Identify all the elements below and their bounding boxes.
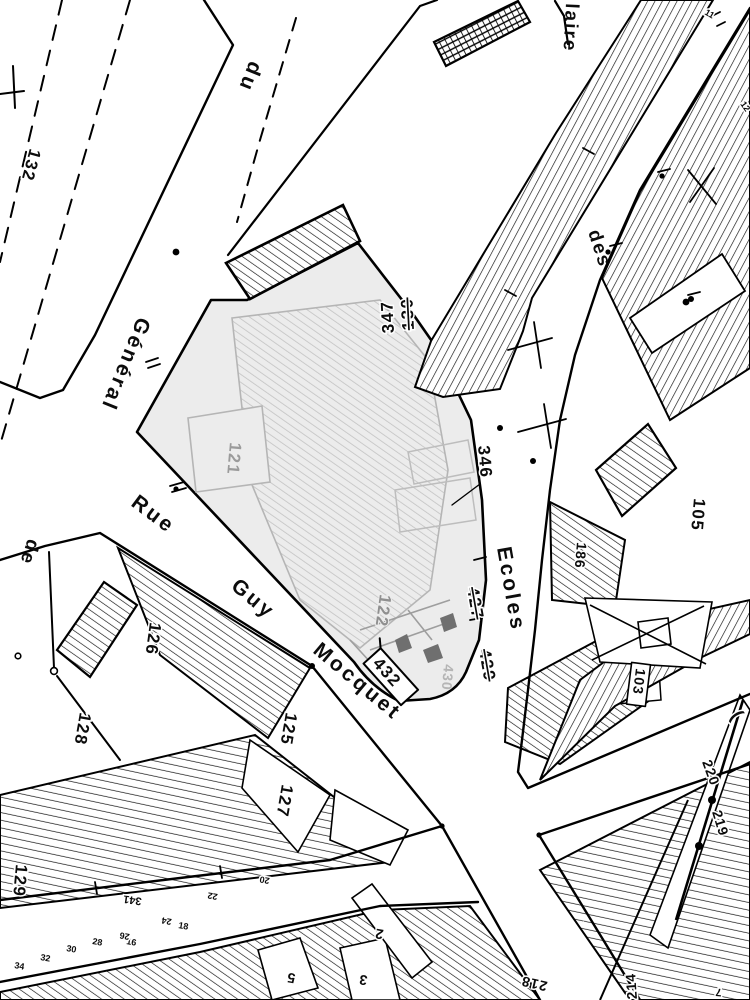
house-number-18: 18 <box>178 920 190 932</box>
parcel-label-347: 347 <box>377 300 398 334</box>
street-label-rue: Rue <box>127 491 180 539</box>
parcel-label-429: 429 <box>475 647 499 683</box>
parcel-label-430: 430 <box>439 664 457 692</box>
house-number-34: 34 <box>14 960 26 972</box>
dashed-median-du <box>237 18 296 222</box>
house-number-26: 26 <box>119 930 131 942</box>
street-label-des: des <box>583 227 615 270</box>
parcel-label-186: 186 <box>572 542 590 570</box>
parcel-label-121: 121 <box>223 442 245 476</box>
corner-mark-a <box>13 66 15 108</box>
house-number-28: 28 <box>92 936 104 948</box>
street-label-de: de <box>15 536 43 567</box>
cadastral-map-page: du Général de Rue Guy Mocquet des Ecoles… <box>0 0 750 1000</box>
dashed-boundary-1 <box>0 0 62 262</box>
street-label-laire: laire <box>558 3 582 53</box>
survey-cross-1b <box>534 322 541 368</box>
street-label-ecoles: Ecoles <box>492 545 530 633</box>
parcel-label-128: 128 <box>70 711 94 747</box>
parcel-label-129: 129 <box>9 864 31 898</box>
parcel-label-346: 346 <box>474 445 496 479</box>
parcel-label-214: 214 <box>622 972 640 999</box>
parcel-label-103: 103 <box>630 668 649 696</box>
cadastral-map: du Général de Rue Guy Mocquet des Ecoles… <box>0 0 750 1000</box>
house-number-30: 30 <box>66 943 78 955</box>
survey-cross-2b <box>544 404 551 448</box>
house-number-341: 341 <box>123 892 143 906</box>
parcel-diamond <box>596 424 676 516</box>
boundary-dot-2 <box>695 842 703 850</box>
corner-circle-2 <box>51 668 58 675</box>
house-number-32: 32 <box>40 952 52 964</box>
boundary-dot-1 <box>708 796 716 804</box>
parcel-label-126: 126 <box>141 621 164 656</box>
edge-126-west <box>49 552 54 668</box>
corner-circle-1 <box>15 653 21 659</box>
school-building <box>434 1 530 66</box>
parcel-label-132: 132 <box>18 147 45 184</box>
street-label-general: Général <box>96 314 154 415</box>
building-126 <box>57 582 137 677</box>
house-number-20: 20 <box>259 874 271 886</box>
parcel-label-105: 105 <box>687 498 709 532</box>
street-label-du: du <box>234 58 267 96</box>
house-number-7: 7 <box>715 985 722 997</box>
house-number-22: 22 <box>207 890 219 902</box>
corner-mark-b <box>0 91 24 94</box>
parcel-label-130: 130 <box>397 297 418 331</box>
house-number-24: 24 <box>161 915 173 927</box>
